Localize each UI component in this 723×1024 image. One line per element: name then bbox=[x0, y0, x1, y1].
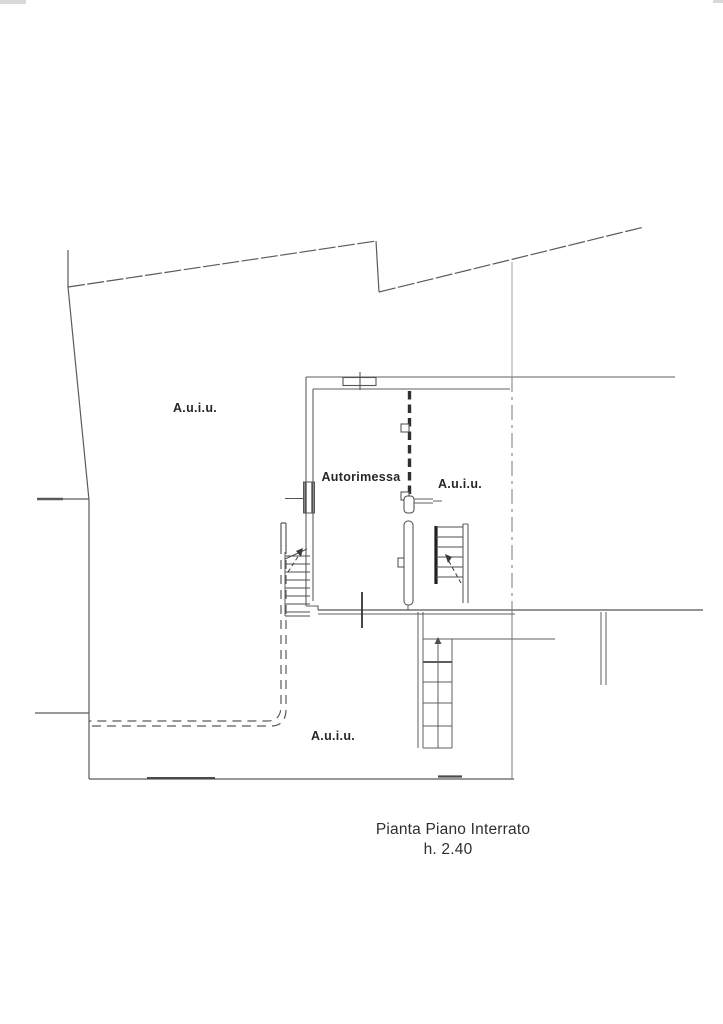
pier-outline bbox=[404, 521, 413, 605]
stair-direction-arrowhead bbox=[445, 554, 452, 563]
boundary-left bbox=[68, 287, 89, 779]
property-boundary bbox=[35, 227, 644, 779]
pier-tab bbox=[398, 558, 404, 567]
drawing-height-note: h. 2.40 bbox=[338, 841, 558, 859]
wall-left-step bbox=[306, 606, 318, 610]
dashed-boundary-outer bbox=[89, 545, 281, 721]
floor-plan-drawing: A.u.i.u. Autorimessa A.u.i.u. A.u.i.u. bbox=[0, 0, 723, 1024]
shaft-arrowhead bbox=[435, 637, 442, 644]
stair-winder-cut bbox=[285, 549, 307, 559]
garage-partition bbox=[401, 391, 442, 513]
interior-staircase bbox=[436, 524, 468, 603]
label-area-lower: A.u.i.u. bbox=[311, 729, 355, 743]
partition-end-post bbox=[404, 496, 414, 513]
stair-direction-arrow-shaft bbox=[447, 558, 461, 583]
lower-partition-pier bbox=[398, 521, 413, 610]
drawing-title: Pianta Piano Interrato bbox=[343, 821, 563, 839]
label-garage: Autorimessa bbox=[321, 470, 401, 484]
scanned-floor-plan-page: A.u.i.u. Autorimessa A.u.i.u. A.u.i.u. P… bbox=[0, 0, 723, 1024]
boundary-top-left bbox=[68, 241, 376, 287]
partition-tab bbox=[401, 424, 409, 432]
south-wall bbox=[318, 592, 703, 628]
window-left-wall bbox=[285, 482, 315, 513]
window-top-wall bbox=[343, 372, 376, 390]
boundary-top-right bbox=[379, 227, 644, 292]
dashed-area-boundary bbox=[89, 523, 286, 726]
dashed-boundary-inner bbox=[89, 545, 286, 726]
boundary-top-notch bbox=[376, 241, 379, 292]
east-wall-stub bbox=[601, 612, 606, 685]
dashed-boundary-solid-cap bbox=[281, 523, 286, 546]
building-walls bbox=[306, 377, 675, 610]
stair-treads bbox=[436, 527, 463, 577]
door-sill bbox=[414, 499, 442, 503]
stair-right-wall bbox=[463, 524, 468, 603]
label-area-upper-left: A.u.i.u. bbox=[173, 401, 217, 415]
label-area-middle: A.u.i.u. bbox=[438, 477, 482, 491]
